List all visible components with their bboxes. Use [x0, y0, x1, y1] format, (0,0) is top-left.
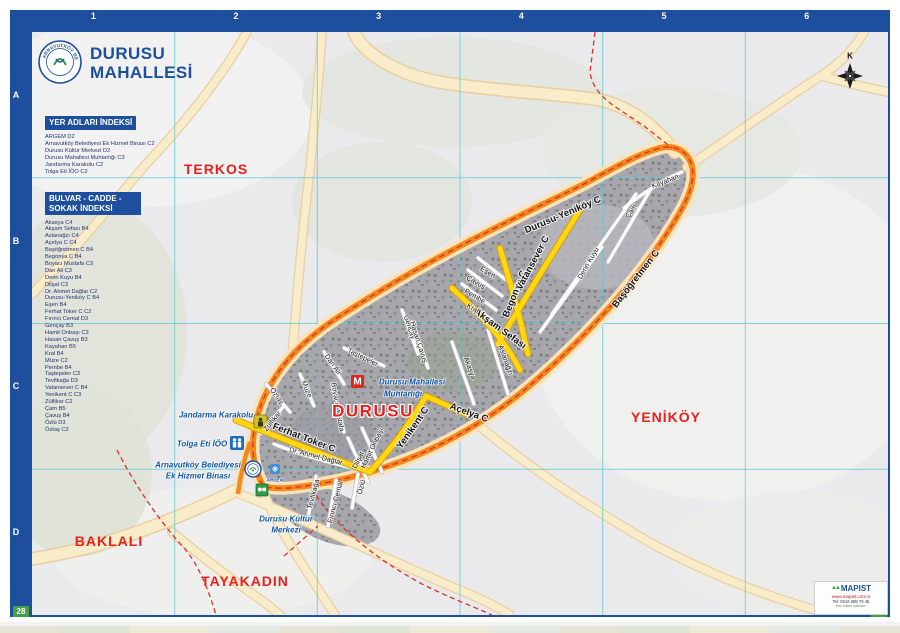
page-title-line2: MAHALLESİ: [90, 63, 193, 82]
poi-label: Durusu Mahallesi: [379, 378, 446, 387]
argem-icon: [270, 464, 280, 474]
poi-label: ARGEM: [265, 478, 283, 483]
index-item: Gençay B3: [45, 323, 141, 330]
index-item: Kayahan B5: [45, 344, 141, 351]
index-item: Hamit Onbaşı C3: [45, 330, 141, 337]
index-item: Tevfikağa D3: [45, 378, 141, 385]
index-item: Dilşat C3: [45, 282, 141, 289]
streets-index: BULVAR - CADDE - SOKAK İNDEKSİ Akasya C4…: [45, 192, 141, 434]
grid-letter: D: [10, 459, 22, 605]
grid-bar-top: 123456: [22, 10, 878, 22]
school-icon: [230, 436, 244, 450]
grid-letter: B: [10, 168, 22, 314]
map-frame: 123456 123456 ABCD ABCD 28 29: [10, 10, 890, 617]
grid-num: 4: [450, 10, 593, 22]
grid-letter: A: [10, 22, 22, 168]
belediye-logo-icon: [245, 461, 261, 477]
index-item: Kral B4: [45, 351, 141, 358]
index-item: Zülfikar C2: [45, 399, 141, 406]
index-item: Durusu Mahallesi Muhtarlığı C3: [45, 155, 155, 162]
places-index-items: ARGEM D2Arnavutköy Belediyesi Ek Hizmet …: [45, 134, 155, 175]
publisher-name: MAPIST: [841, 584, 871, 593]
poi-label: Tolga Eti İÖO: [177, 440, 228, 449]
index-item: Yenikent C C3: [45, 392, 141, 399]
index-item: ARGEM D2: [45, 134, 155, 141]
index-item: Başöğretmen C B4: [45, 247, 141, 254]
index-item: Açelya C C4: [45, 240, 141, 247]
places-index: YER ADLARI İNDEKSİ ARGEM D2Arnavutköy Be…: [45, 112, 155, 175]
poi-label: Jandarma Karakolu: [179, 411, 253, 420]
grid-num: 6: [735, 10, 878, 22]
index-item: Derin Kuyu B4: [45, 275, 141, 282]
index-item: Begonya C B4: [45, 254, 141, 261]
poi-label: Durusu Kültür: [259, 515, 314, 524]
index-item: Akşam Sefası B4: [45, 226, 141, 233]
next-page-strip: [0, 626, 900, 633]
index-item: Boyacı Mustafa C3: [45, 261, 141, 268]
grid-num: 3: [307, 10, 450, 22]
map-canvas: M K ARNAVUTKÖY BELEDİYE: [32, 32, 888, 615]
poi-label: Muhtarlığı: [384, 390, 423, 399]
poi-label: Arnavutköy Belediyesi: [154, 461, 242, 470]
places-index-title: YER ADLARI İNDEKSİ: [45, 116, 136, 130]
grid-num: 1: [22, 10, 165, 22]
grid-bar-left: ABCD: [10, 22, 22, 605]
index-item: Durusu-Yeniköy C B4: [45, 295, 141, 302]
index-item: Durusu Kültür Merkezi D2: [45, 148, 155, 155]
index-item: Çavuş B4: [45, 413, 141, 420]
streets-index-items: Akasya C4Akşam Sefası B4Aslanağzı C4Açel…: [45, 220, 141, 434]
index-item: Dan Ali C3: [45, 268, 141, 275]
index-item: Vatansever C B4: [45, 385, 141, 392]
index-item: Jandarma Karakolu C2: [45, 162, 155, 169]
mapist-mountain-icon: ▲▲: [831, 584, 839, 593]
publisher-note: Her hakkı saklıdır.: [815, 604, 887, 608]
area-label: YENİKÖY: [631, 409, 701, 425]
grid-num: 5: [593, 10, 736, 22]
index-item: Pembe B4: [45, 365, 141, 372]
index-item: Özlü D3: [45, 420, 141, 427]
index-item: Eşen B4: [45, 302, 141, 309]
muhtarlik-letter: M: [353, 376, 361, 387]
area-label: BAKLALI: [75, 533, 143, 549]
index-item: Öztaş C2: [45, 427, 141, 434]
index-item: Aslanağzı C4: [45, 233, 141, 240]
map-graphics: M K ARNAVUTKÖY BELEDİYE: [32, 32, 888, 615]
area-label: TERKOS: [184, 161, 248, 177]
index-item: Dr. Ahmet Dağlar C2: [45, 289, 141, 296]
map-sheet: 123456 123456 ABCD ABCD 28 29: [0, 0, 900, 622]
index-item: Müze C2: [45, 358, 141, 365]
area-label: DURUSU: [332, 402, 414, 421]
index-item: Fırıncı Cemal D3: [45, 316, 141, 323]
poi-label: Merkezi: [271, 526, 301, 535]
poi-label: Ek Hizmet Binası: [166, 472, 231, 481]
grid-letter: C: [10, 314, 22, 460]
index-item: Akasya C4: [45, 220, 141, 227]
index-item: Arnavutköy Belediyesi Ek Hizmet Binası C…: [45, 141, 155, 148]
grid-num: 2: [165, 10, 308, 22]
area-label: TAYAKADIN: [201, 573, 289, 589]
publisher-box: ▲▲ MAPIST www.mapist.com.tr Tel: 0216 68…: [814, 581, 888, 615]
page-title: DURUSU MAHALLESİ: [90, 44, 193, 82]
index-item: Çam B5: [45, 406, 141, 413]
streets-index-title: BULVAR - CADDE - SOKAK İNDEKSİ: [45, 192, 141, 215]
compass-north-label: K: [847, 52, 853, 61]
index-item: Tolga Eti İÖO C2: [45, 169, 155, 176]
page-number-left: 28: [13, 606, 29, 617]
publisher-logo: ▲▲ MAPIST: [815, 584, 887, 593]
page-title-line1: DURUSU: [90, 44, 193, 63]
title-block: DURUSU MAHALLESİ: [90, 44, 193, 82]
muhtarlik-icon: M: [351, 375, 364, 388]
index-item: Taştepeler C3: [45, 371, 141, 378]
index-item: Hasan Çavuş B3: [45, 337, 141, 344]
kultur-merkezi-icon: [256, 484, 268, 496]
index-item: Ferhat Toker C C2: [45, 309, 141, 316]
